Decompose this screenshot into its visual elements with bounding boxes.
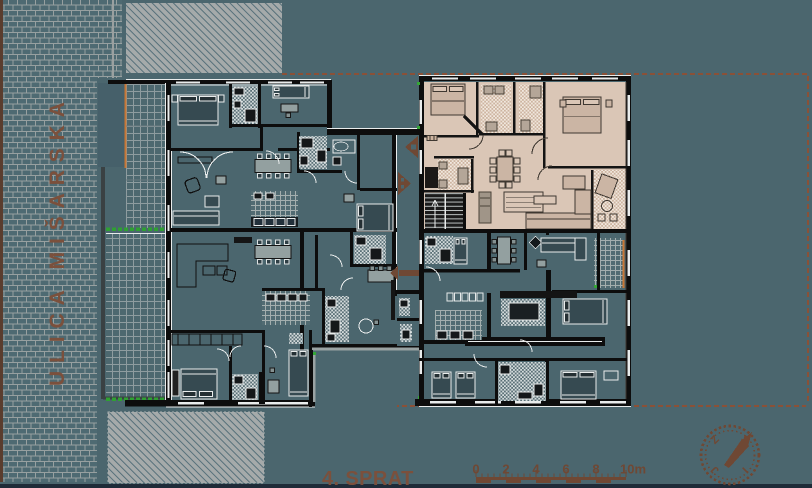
svg-text:4. SPRAT: 4. SPRAT [322, 468, 414, 488]
svg-text:ULICA MIŠARSKA: ULICA MIŠARSKA [45, 94, 69, 386]
svg-text:10m: 10m [620, 462, 646, 477]
